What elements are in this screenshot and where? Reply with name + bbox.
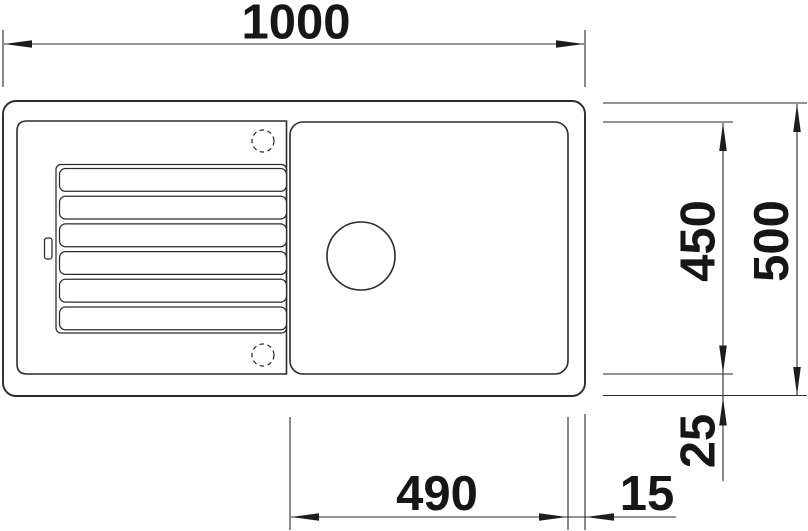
drainer-groove xyxy=(60,279,287,302)
dim-bowl-width-label: 490 xyxy=(396,467,478,521)
drainer-groove xyxy=(60,307,287,330)
sink-body xyxy=(3,101,585,396)
dim-bowl-edge-gap-right-label: 15 xyxy=(620,467,675,521)
arrowhead-down xyxy=(793,367,801,395)
drainer-groove xyxy=(60,224,287,247)
tap-hole-top xyxy=(252,130,274,152)
drawing-svg: 1000 450 25 500 490 15 xyxy=(0,0,808,531)
dim-overall-width: 1000 xyxy=(3,0,585,87)
tap-hole-bottom xyxy=(252,344,274,366)
sink-outline xyxy=(3,101,585,396)
sink-technical-drawing: 1000 450 25 500 490 15 xyxy=(0,0,808,531)
arrowhead-up xyxy=(719,123,727,151)
dim-overall-depth-label: 500 xyxy=(745,200,799,282)
drainer-groove xyxy=(60,252,287,275)
dim-bowl-edge-gap-bottom: 25 xyxy=(672,398,727,469)
arrowhead-left xyxy=(291,513,319,521)
arrowhead-left xyxy=(4,40,32,48)
dim-bowl-depth-label: 450 xyxy=(672,200,726,282)
bowl-outline xyxy=(290,122,568,374)
arrowhead-up xyxy=(793,104,801,132)
arrowhead-left xyxy=(586,513,614,521)
arrowhead-right xyxy=(556,40,584,48)
drainer-groove xyxy=(60,196,287,219)
dim-overall-width-label: 1000 xyxy=(241,0,350,50)
dim-bowl-edge-gap-right: 15 xyxy=(585,414,674,530)
dim-bowl-edge-gap-bottom-label: 25 xyxy=(672,414,726,469)
overflow-slot xyxy=(45,238,53,259)
dim-bowl-width: 490 xyxy=(290,417,676,530)
drainer-grooves xyxy=(60,169,287,330)
rim-inner-outline xyxy=(17,121,287,374)
arrowhead-down xyxy=(719,346,727,374)
drainer-groove xyxy=(60,169,287,192)
arrowhead-right xyxy=(539,513,567,521)
drain-hole xyxy=(327,222,395,290)
